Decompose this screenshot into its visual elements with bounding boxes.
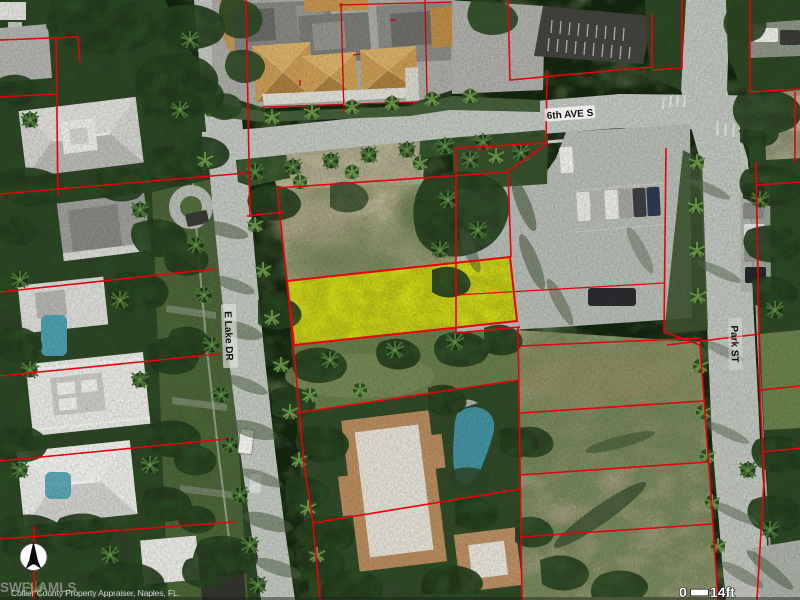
svg-text:Collier County Property Apprai: Collier County Property Appraiser, Naple… <box>11 588 180 598</box>
svg-text:E Lake DR: E Lake DR <box>222 311 235 362</box>
svg-text:Park ST: Park ST <box>728 325 740 362</box>
